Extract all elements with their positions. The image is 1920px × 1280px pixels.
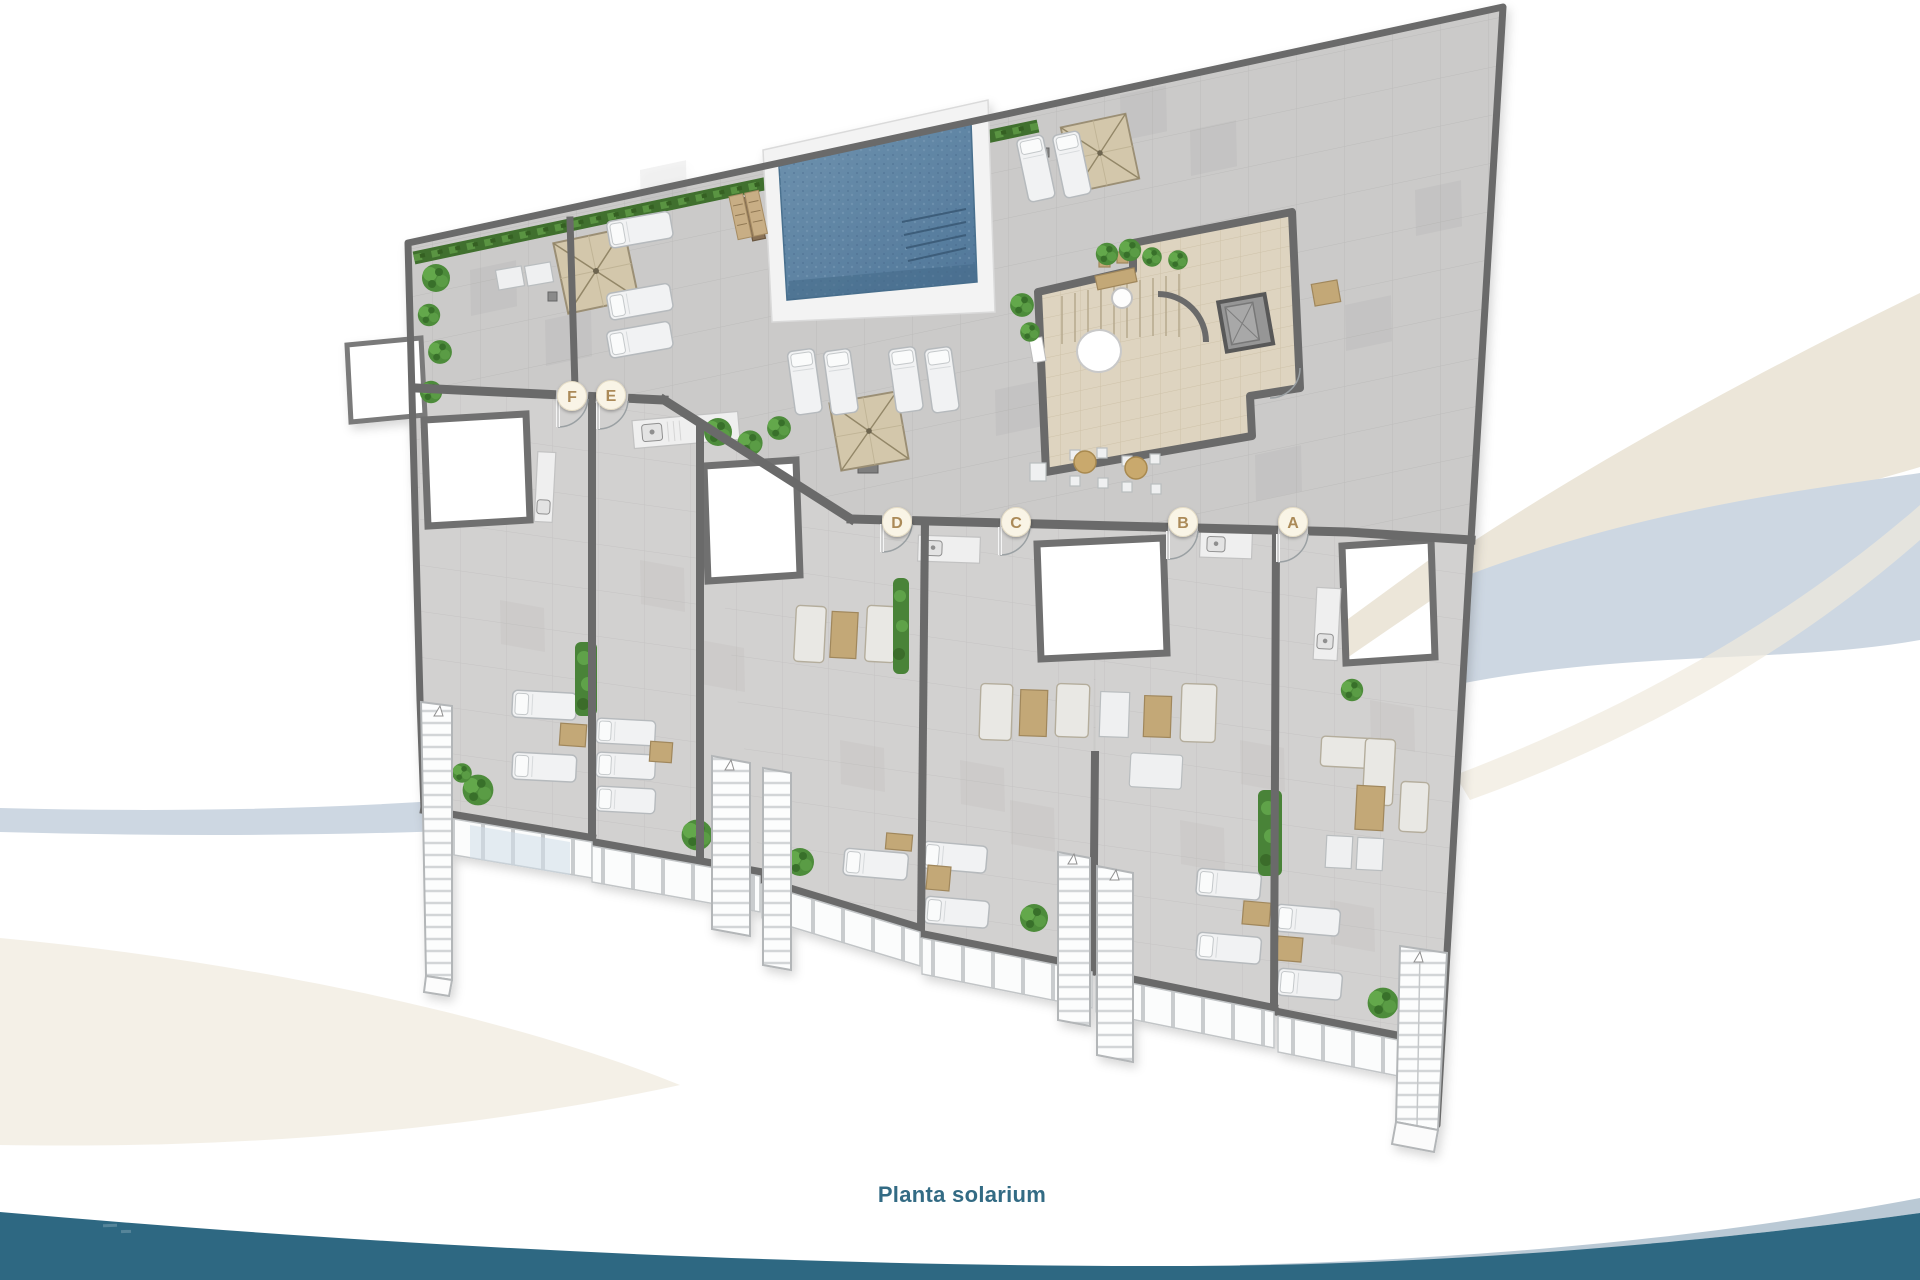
floor-plan: F E D C B A: [347, 7, 1503, 1152]
bush-icon: [1020, 904, 1048, 932]
bush-icon: [452, 763, 472, 783]
sun-lounger: [596, 752, 656, 780]
planter-strip: [893, 578, 909, 674]
staircase-e: [712, 756, 750, 936]
skylight-a: [1342, 540, 1435, 663]
sun-lounger: [596, 786, 656, 814]
wall-divider-dc: [921, 523, 925, 930]
footer-wave: [0, 1198, 1920, 1280]
unit-badge-letter: D: [891, 515, 903, 532]
swimming-pool: [744, 100, 995, 322]
plan-caption: Planta solarium: [762, 1182, 1162, 1208]
skylight-f: [424, 414, 530, 526]
wall-divider-ba: [1274, 533, 1276, 1006]
sun-lounger: [1196, 932, 1262, 964]
footer-wave-teal: [0, 1212, 1920, 1280]
staircase-a: [1392, 946, 1447, 1152]
unit-badge-f: F: [558, 382, 587, 411]
bush-icon: [1096, 243, 1118, 265]
palm-icon: [767, 416, 791, 440]
sun-lounger: [1275, 904, 1341, 936]
bush-icon: [1119, 239, 1141, 261]
bush-icon: [418, 304, 440, 326]
unit-badge-letter: B: [1177, 515, 1189, 532]
sun-lounger: [1196, 868, 1262, 900]
swoosh-beige-left: [0, 938, 680, 1146]
unit-badge-letter: F: [567, 389, 577, 406]
staircase-c: [1058, 852, 1090, 1026]
bush-icon: [1341, 679, 1363, 701]
sun-lounger: [512, 690, 577, 720]
bush-icon: [422, 264, 450, 292]
sun-lounger: [1277, 968, 1343, 1000]
bush-icon: [1142, 247, 1162, 267]
unit-badge-e: E: [597, 381, 626, 410]
sun-lounger: [924, 896, 990, 928]
staircase-f: [421, 702, 452, 996]
staircase-b: [1097, 866, 1133, 1062]
unit-badge-letter: E: [606, 388, 617, 405]
unit-badge-a: A: [1279, 508, 1308, 537]
unit-badge-c: C: [1002, 508, 1031, 537]
wall-divider-cb: [1093, 755, 1095, 968]
unit-badge-letter: C: [1010, 515, 1022, 532]
wall-interior-left: [570, 220, 575, 388]
round-table: [1112, 288, 1132, 308]
unit-badge-b: B: [1169, 508, 1198, 537]
bush-icon: [1010, 293, 1034, 317]
unit-badge-d: D: [883, 508, 912, 537]
sun-lounger: [512, 752, 577, 782]
elevator: [1218, 294, 1273, 351]
sun-lounger: [596, 718, 656, 746]
page: F E D C B A: [0, 0, 1920, 1280]
floorplan-svg: F E D C B A: [0, 0, 1920, 1280]
staircase-d: [763, 768, 791, 970]
bush-icon: [1168, 250, 1188, 270]
bush-icon: [428, 340, 452, 364]
unit-badge-letter: A: [1287, 515, 1299, 532]
sun-lounger: [843, 848, 909, 880]
bush-icon: [1368, 988, 1399, 1019]
skylight-c: [1037, 538, 1167, 659]
bench: [1311, 280, 1340, 306]
bush-icon: [1020, 322, 1040, 342]
